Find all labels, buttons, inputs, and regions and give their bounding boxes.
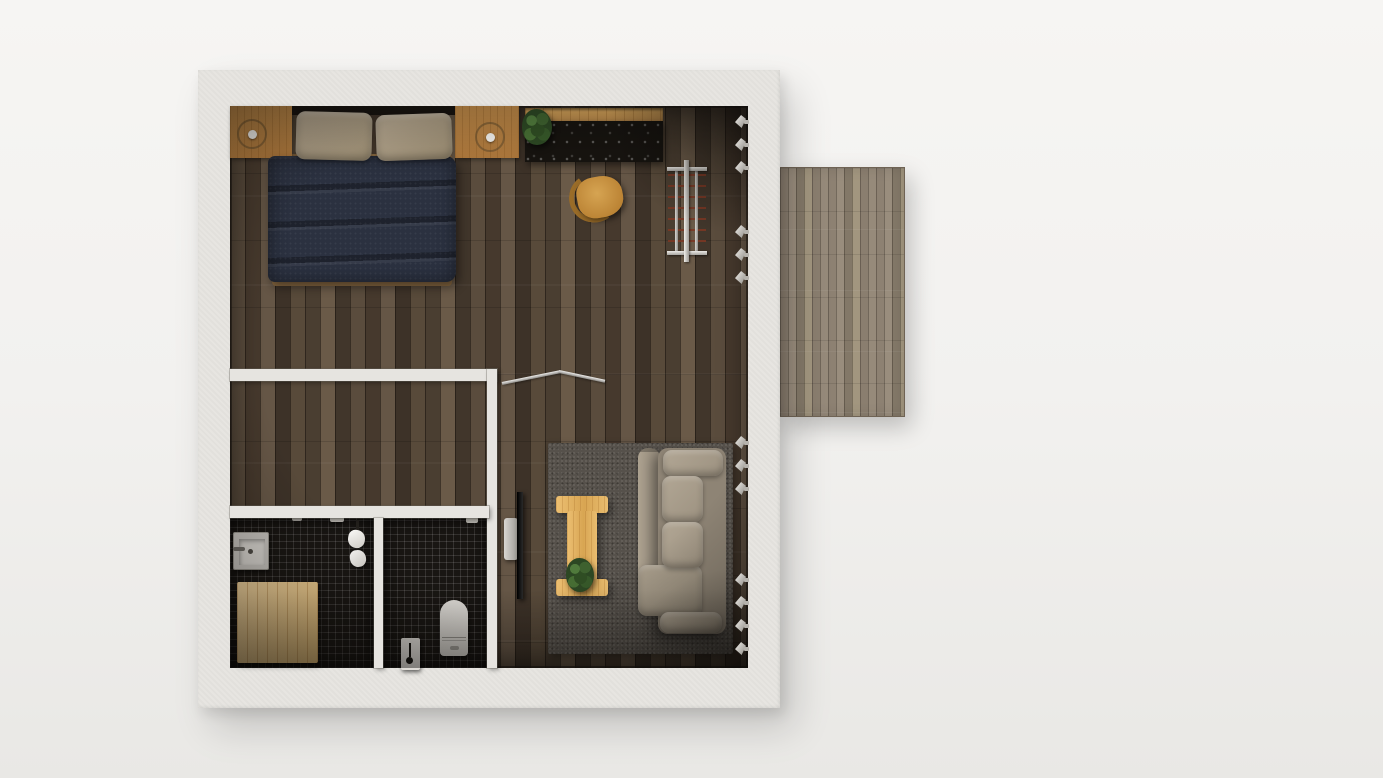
wall-spotlight-group [735, 114, 750, 175]
desk-chair [565, 169, 628, 225]
closet-right-wall [487, 369, 497, 668]
sofa-arm-cushion [660, 612, 722, 633]
render-canvas [0, 0, 1383, 778]
sofa-chaise [638, 565, 702, 616]
pillow-right [375, 113, 453, 162]
bed-duvet [268, 156, 456, 282]
main-floor [230, 106, 748, 668]
clothes-rack [664, 160, 710, 262]
basin-faucet [233, 547, 245, 551]
hanging-rail-segment [502, 370, 560, 385]
wall-spotlight [735, 481, 748, 496]
pillow-left [295, 111, 372, 161]
reading-light-left [237, 119, 267, 149]
sofa-arm-cushion [663, 450, 723, 476]
tv [517, 492, 523, 599]
tv-stand [504, 518, 518, 560]
wall-spotlight [735, 224, 748, 239]
rack-pole [684, 160, 689, 262]
closet-top-wall [230, 369, 497, 381]
washbasin [233, 532, 269, 570]
wall-spotlight [735, 247, 748, 262]
wall-spotlight-group [735, 224, 750, 285]
toilet-brush-stand [401, 638, 420, 670]
outdoor-deck [779, 167, 905, 417]
reading-light-right [475, 122, 505, 152]
wall-spotlight-group [735, 435, 750, 496]
wall-spotlight [735, 572, 748, 587]
wall-spotlight [735, 160, 748, 175]
bathroom-top-wall [230, 506, 489, 518]
hanging-rail-segment [559, 370, 606, 383]
wall-spotlight [735, 641, 748, 656]
toilet [440, 600, 468, 656]
wall-spotlight [735, 595, 748, 610]
sofa-seat-cushion [662, 522, 703, 568]
wall-spotlight [735, 458, 748, 473]
rack-rail [675, 169, 678, 253]
rack-rail [695, 169, 698, 253]
toilet-room-floor [383, 518, 489, 668]
apartment-outer-wall [198, 70, 780, 708]
sofa [638, 448, 726, 634]
wall-spotlight [735, 137, 748, 152]
sofa-seat-cushion [662, 476, 703, 522]
wall-spotlight-group [735, 572, 750, 656]
wall-spotlight [735, 435, 748, 450]
wall-spotlight [735, 114, 748, 129]
coffee-table-plant [566, 558, 594, 592]
bathroom-divider-wall [374, 518, 383, 668]
shower-mat [237, 582, 318, 663]
wall-spotlight [735, 618, 748, 633]
desk-plant [522, 109, 552, 145]
wall-spotlight [735, 270, 748, 285]
